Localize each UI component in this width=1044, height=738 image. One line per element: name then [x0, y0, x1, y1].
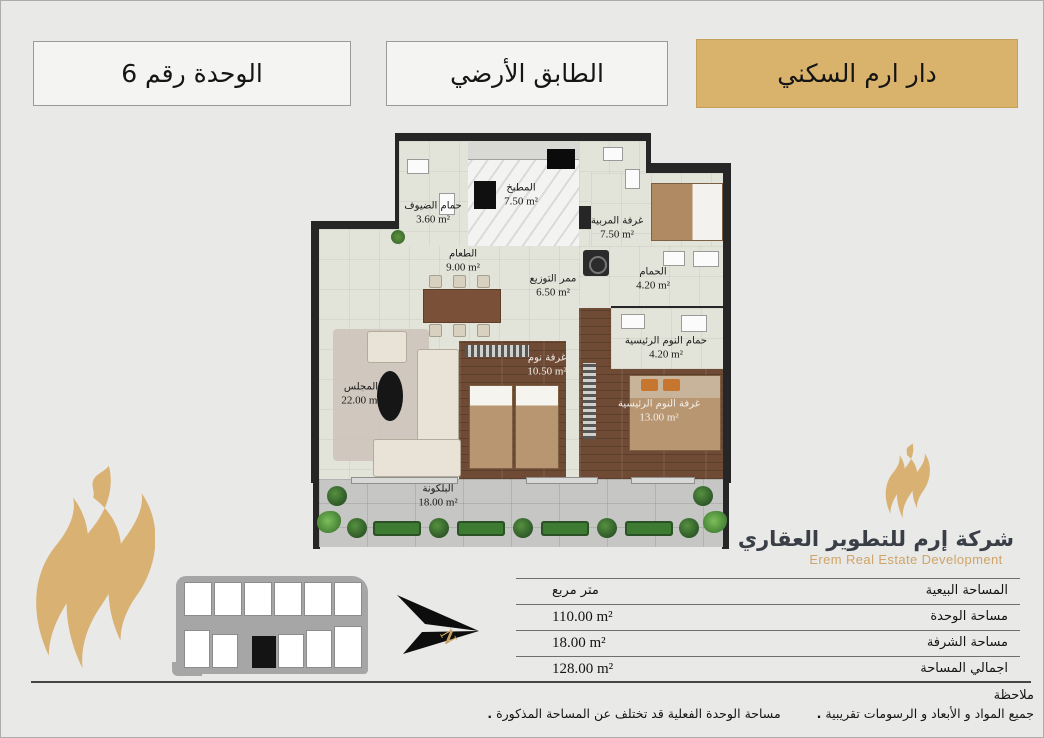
label-balcony: البلكونة18.00 m² [418, 482, 457, 509]
table-row: متر مربع المساحة البيعية [516, 578, 1020, 604]
area-value: متر مربع [552, 583, 599, 598]
project-name-box: دار ارم السكني [696, 39, 1018, 108]
table-row: 128.00 m² اجمالي المساحة [516, 656, 1020, 682]
area-label: مساحة الوحدة [930, 609, 1008, 624]
master-pillow-2 [663, 379, 680, 391]
floor-plan: حمام الضيوف3.60 m² المطبخ7.50 m² غرفة ال… [311, 133, 731, 563]
entry-bath-toilet [625, 169, 640, 189]
window-sill [526, 477, 598, 484]
key-unit-highlighted [252, 636, 276, 668]
twin-bed-1 [469, 385, 513, 469]
master-bath-toilet [681, 315, 707, 332]
plant-pot [513, 518, 533, 538]
area-label: المساحة البيعية [926, 583, 1008, 598]
key-unit [334, 626, 362, 668]
plant-pot [429, 518, 449, 538]
notes-title: ملاحظة [487, 688, 1034, 703]
plant-pot [679, 518, 699, 538]
floorplan-sheet: دار ارم السكني الطابق الأرضي الوحدة رقم … [0, 0, 1044, 738]
area-value: 128.00 m² [552, 661, 613, 678]
unit-number: الوحدة رقم 6 [121, 59, 263, 88]
plant-pot [327, 486, 347, 506]
label-bedroom: غرفة نوم10.50 m² [527, 351, 566, 378]
bathroom-toilet [693, 251, 719, 267]
dining-chair [477, 324, 490, 337]
floor-name: الطابق الأرضي [450, 59, 604, 88]
master-bath-sink [621, 314, 645, 329]
area-value: 110.00 m² [552, 609, 613, 626]
plant-planter [541, 521, 589, 536]
bedroom-wardrobe [465, 345, 529, 357]
flame-watermark [27, 449, 155, 681]
key-plan [176, 576, 368, 674]
window-sill [631, 477, 695, 484]
company-logo: شركة إرم للتطوير العقاري Erem Real Estat… [798, 437, 1014, 567]
key-unit [214, 582, 242, 616]
unit-number-box: الوحدة رقم 6 [33, 41, 351, 106]
dining-chair [429, 275, 442, 288]
label-majlis: المجلس22.00 m² [341, 380, 380, 407]
guest-bath-sink [407, 159, 429, 174]
key-unit [212, 634, 238, 668]
area-table: متر مربع المساحة البيعية 110.00 m² مساحة… [516, 578, 1020, 682]
area-label: اجمالي المساحة [920, 661, 1008, 676]
label-dining: الطعام9.00 m² [446, 247, 480, 274]
room-guest-bath [399, 141, 468, 246]
note-item: . مساحة الوحدة الفعلية قد تختلف عن المسا… [487, 706, 780, 721]
hall-plant [391, 230, 405, 244]
key-unit [304, 582, 332, 616]
floor-name-box: الطابق الأرضي [386, 41, 668, 106]
key-unit [184, 582, 212, 616]
master-wardrobe [583, 363, 596, 439]
dining-chair [477, 275, 490, 288]
master-pillow-1 [641, 379, 658, 391]
label-corridor: ممر التوزيع6.50 m² [530, 272, 577, 299]
north-arrow: N [393, 590, 483, 658]
plant-pot [347, 518, 367, 538]
twin-bed-2 [515, 385, 559, 469]
kitchen-fridge [547, 149, 575, 169]
dining-table [423, 289, 501, 323]
dining-chair [429, 324, 442, 337]
plant-planter [625, 521, 673, 536]
bathroom-sink [663, 251, 685, 266]
label-kitchen: المطبخ7.50 m² [504, 181, 538, 208]
entry-bath-sink [603, 147, 623, 161]
armchair [367, 331, 407, 363]
company-name-english: Erem Real Estate Development [798, 552, 1014, 567]
table-row: 18.00 m² مساحة الشرفة [516, 630, 1020, 656]
area-value: 18.00 m² [552, 635, 606, 652]
label-master-bedroom: غرفة النوم الرئيسية13.00 m² [618, 397, 700, 424]
sofa-short [373, 439, 461, 477]
plant-planter [373, 521, 421, 536]
label-maid-room: غرفة المربية7.50 m² [591, 214, 643, 241]
plant-pot [597, 518, 617, 538]
key-unit [334, 582, 362, 616]
area-label: مساحة الشرفة [927, 635, 1008, 650]
notes: ملاحظة . جميع المواد و الأبعاد و الرسوما… [487, 688, 1034, 721]
table-row: 110.00 m² مساحة الوحدة [516, 604, 1020, 630]
north-letter: N [435, 626, 460, 649]
dining-chair [453, 275, 466, 288]
key-unit [244, 582, 272, 616]
note-item: . جميع المواد و الأبعاد و الرسومات تقريب… [817, 706, 1034, 721]
dining-chair [453, 324, 466, 337]
company-name-arabic: شركة إرم للتطوير العقاري [798, 527, 1014, 551]
washer-door [589, 256, 607, 274]
label-master-bath: حمام النوم الرئيسية4.20 m² [625, 334, 707, 361]
plant-pot [693, 486, 713, 506]
key-unit [274, 582, 302, 616]
footer-divider [31, 681, 1031, 683]
flame-icon [882, 437, 930, 523]
key-unit [278, 634, 304, 668]
coffee-table [377, 371, 403, 421]
maid-bed [651, 183, 723, 241]
label-bathroom: الحمام4.20 m² [636, 265, 670, 292]
kitchen-stove [474, 181, 496, 209]
plant-planter [457, 521, 505, 536]
project-name: دار ارم السكني [777, 59, 937, 88]
label-guest-bath: حمام الضيوف3.60 m² [404, 199, 461, 226]
key-unit [306, 630, 332, 668]
key-unit [184, 630, 210, 668]
